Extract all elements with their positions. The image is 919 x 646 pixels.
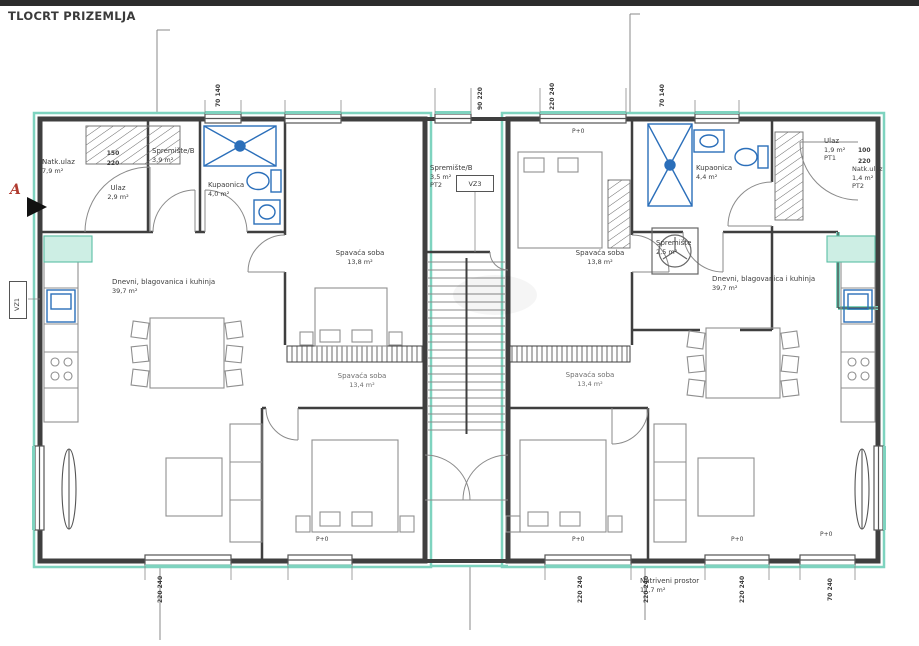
p0-marker-3: P+0	[572, 536, 584, 543]
dim-bottom-right: 70 240	[827, 578, 834, 601]
dim-top-center-right: 220 240	[549, 83, 556, 110]
dim-top-left-window: 70 140	[215, 84, 222, 107]
dim-top-right-window: 70 140	[659, 84, 666, 107]
room-label-kupaonica-left: Kupaonica 4,0 m²	[208, 181, 264, 198]
dim-bottom-2: 220 240	[577, 576, 584, 603]
room-label-ulaz-left: Ulaz 2,9 m²	[96, 184, 140, 201]
p0-marker-5: P+0	[820, 531, 832, 538]
room-label-spremiste-b-left: Spremište/B 3,9 m²	[152, 147, 208, 164]
p0-marker-2: P+0	[572, 128, 584, 135]
watermark-smudge	[453, 275, 537, 315]
dim-entry-right-w: 100	[858, 147, 871, 154]
vz1-tag-label: VZ1	[13, 298, 21, 311]
dim-bottom-4: 220 240	[739, 576, 746, 603]
room-label-natk-ulaz-right: Natk.ulaz 1,4 m² PT2	[852, 165, 898, 191]
room-label-ulaz-right: Ulaz 1,9 m² PT1	[824, 137, 845, 163]
room-label-spremiste-right: Spremište 2,5 m²	[656, 239, 712, 256]
room-label-dnevni-right: Dnevni, blagovanica i kuhinja 39,7 m²	[712, 275, 815, 292]
room-label-kupaonica-right: Kupaonica 4,4 m²	[696, 164, 756, 181]
p0-marker-4: P+0	[731, 536, 743, 543]
room-label-spavaca-soba-left-2: Spavaća soba 13,4 m²	[322, 372, 402, 389]
room-label-spavaca-soba-right-2: Spavaća soba 13,4 m²	[550, 371, 630, 388]
floorplan-page: TLOCRT PRIZEMLJA	[0, 0, 919, 646]
vz3-tag: VZ3	[456, 175, 494, 192]
room-label-natk-ulaz-left: Natk.ulaz 7,9 m²	[42, 158, 94, 175]
room-label-dnevni-left: Dnevni, blagovanica i kuhinja 39,7 m²	[112, 278, 215, 295]
section-marker-a: A	[10, 182, 21, 198]
p0-marker-1: P+0	[316, 536, 328, 543]
room-label-spavaca-soba-right-1: Spavaća soba 13,8 m²	[560, 249, 640, 266]
dim-bottom-3: 220 240	[643, 576, 650, 603]
floorplan-drawing	[0, 0, 919, 646]
dim-top-center: 90 220	[477, 87, 484, 110]
dim-entry-right-h: 220	[858, 158, 871, 165]
dim-entry-left: 150 220	[100, 149, 126, 169]
room-label-spavaca-soba-left-1: Spavaća soba 13,8 m²	[320, 249, 400, 266]
dim-bottom-1: 220 240	[157, 576, 164, 603]
